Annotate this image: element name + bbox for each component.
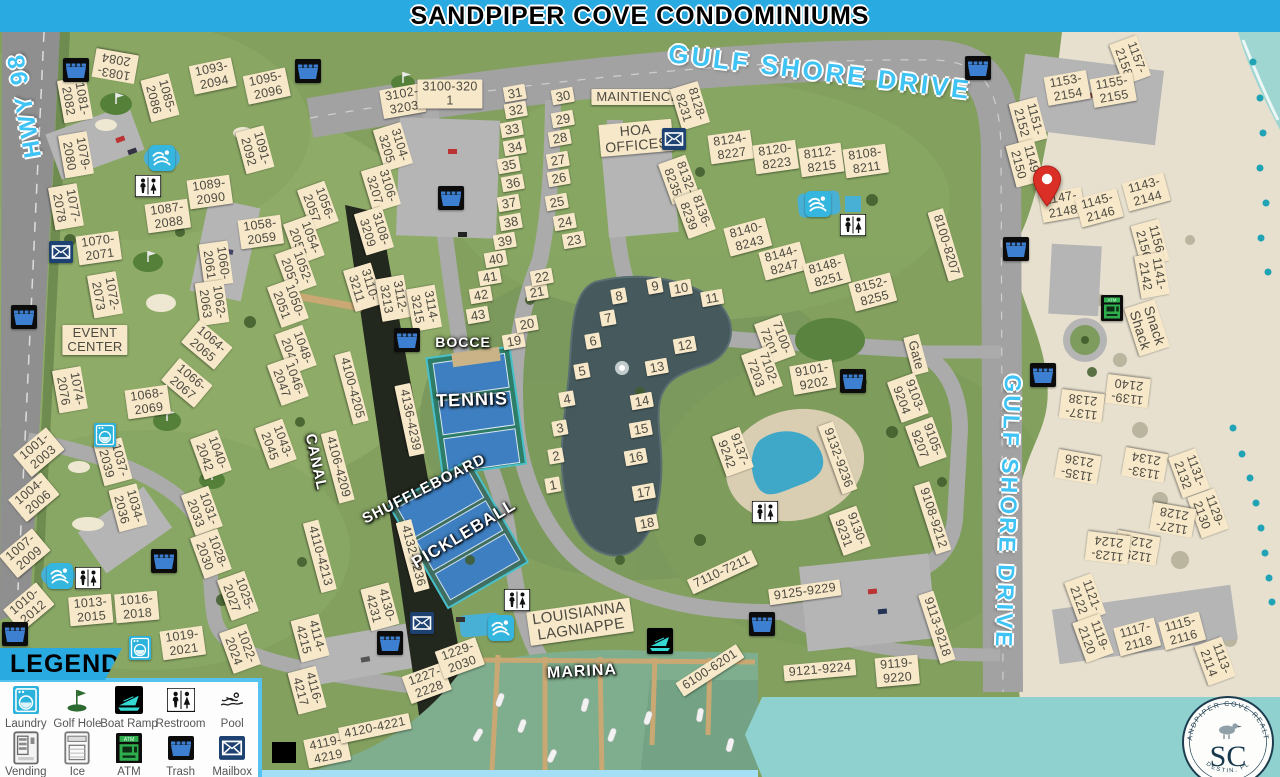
- building-label: 1007- 2009: [0, 528, 51, 578]
- legend-item-label: Ice: [70, 766, 85, 777]
- road-label: GULF SHORE DRIVE: [990, 374, 1027, 650]
- trash-icon: [295, 59, 321, 83]
- building-label: 1131- 2132: [1168, 448, 1210, 498]
- restroom-icon: [135, 175, 161, 197]
- building-label: 1123- 2124: [1085, 531, 1131, 565]
- building-label: 1085- 2086: [140, 73, 179, 123]
- building-label: 1004- 2006: [8, 472, 60, 522]
- building-label: 1013- 2015: [68, 594, 114, 627]
- building-label: 1028- 2030: [190, 529, 232, 580]
- unit-number-label: 11: [700, 289, 724, 308]
- building-label: 1001- 2003: [13, 427, 65, 477]
- building-label: 1040- 2042: [190, 430, 232, 481]
- unit-number-label: 33: [500, 120, 525, 139]
- logo-initials: SC: [1210, 740, 1247, 773]
- legend-item-label: ATM: [117, 766, 140, 777]
- building-label: 1058- 2059: [237, 215, 284, 250]
- legend-item-vending: Vending: [1, 733, 51, 777]
- ice-icon: [64, 733, 90, 763]
- legend-item-label: Trash: [166, 766, 195, 777]
- building-label: LOUISIANNA LAGNIAPPE: [526, 598, 634, 646]
- unit-number-label: 22: [530, 268, 555, 287]
- blacked-out-square: [272, 742, 296, 763]
- unit-number-label: 35: [497, 156, 522, 175]
- legend-item-label: Restroom: [156, 718, 206, 730]
- building-label: 1133- 2134: [1122, 447, 1169, 483]
- building-label: EVENT CENTER: [62, 325, 127, 355]
- building-label: 1081- 2082: [57, 76, 93, 124]
- trash-icon: [168, 733, 194, 763]
- legend-item-pool: Pool: [207, 685, 257, 730]
- building-label: 3104- 3205: [373, 122, 413, 172]
- building-label: 1135- 2136: [1055, 449, 1102, 485]
- restroom-icon: [504, 589, 530, 611]
- mailbox-icon: [219, 733, 245, 763]
- building-label: 1153- 2154: [1044, 70, 1091, 106]
- building-label: 1077- 2078: [48, 183, 84, 231]
- unit-number-label: 32: [504, 101, 529, 120]
- legend-item-atm: ATMATM: [104, 733, 154, 777]
- building-label: 4106-4209: [321, 430, 355, 504]
- building-label: 1127- 2128: [1150, 502, 1197, 538]
- area-label: SHUFFLEBOARD: [359, 451, 488, 528]
- unit-number-label: 34: [503, 138, 528, 157]
- building-label: 8152- 8255: [848, 272, 898, 311]
- building-label: 8124- 8227: [707, 130, 754, 165]
- building-label: 3108- 3209: [354, 206, 394, 256]
- trash-icon: [377, 631, 403, 655]
- building-label: 1145- 2146: [1075, 188, 1124, 227]
- unit-number-label: 3: [551, 419, 569, 436]
- laundry-icon: [129, 636, 151, 660]
- building-label: 1113- 2114: [1194, 636, 1235, 685]
- building-label: 3112- 3213: [375, 275, 411, 322]
- unit-number-label: 37: [497, 194, 522, 213]
- legend-item-laundry: Laundry: [1, 685, 51, 730]
- trash-icon: [63, 58, 89, 82]
- building-label: 9101- 9202: [789, 359, 837, 395]
- map-label-layer: 1083- 20841085- 20861081- 20821079- 2080…: [0, 0, 1280, 777]
- building-label: 1095- 2096: [243, 67, 292, 104]
- location-pin-icon: [1032, 165, 1062, 207]
- trash-icon: [965, 56, 991, 80]
- unit-number-label: 20: [515, 315, 540, 334]
- title-banner: SANDPIPER COVE CONDOMINIUMS: [0, 0, 1280, 32]
- building-label: 1091- 2092: [235, 125, 274, 175]
- unit-number-label: 25: [545, 193, 570, 212]
- legend-row: LaundryGolf HoleBoat RampRestroomPool: [0, 685, 258, 730]
- building-label: 4110-4213: [303, 519, 336, 592]
- pool-icon: [47, 563, 73, 589]
- trash-icon: [1030, 363, 1056, 387]
- building-label: 1068- 2069: [124, 385, 171, 420]
- unit-number-label: 16: [624, 448, 649, 467]
- road-label: HWY 98: [2, 50, 48, 160]
- area-label: BOCCE: [435, 334, 491, 350]
- building-label: 9105- 9207: [905, 417, 947, 468]
- building-label: 1064- 2065: [181, 320, 233, 370]
- trash-icon: [840, 369, 866, 393]
- building-label: 9119- 9220: [875, 655, 920, 688]
- unit-number-label: 41: [478, 268, 503, 287]
- unit-number-label: 10: [669, 279, 694, 298]
- legend-item-label: Boat Ramp: [100, 718, 158, 730]
- unit-number-label: 38: [499, 213, 524, 232]
- building-label: 1155- 2155: [1090, 72, 1137, 108]
- building-label: 1074- 2076: [52, 366, 88, 414]
- area-label: TENNIS: [436, 388, 509, 412]
- building-label: 9113-9218: [919, 591, 956, 664]
- building-label: 4100-4205: [335, 351, 369, 425]
- building-label: 9132-9236: [818, 421, 857, 494]
- unit-number-label: 31: [503, 84, 528, 103]
- building-label: 1087- 2088: [144, 199, 191, 234]
- mailbox-icon: [49, 241, 73, 263]
- trash-icon: [2, 622, 28, 646]
- restroom-icon: [752, 501, 778, 523]
- building-label: 1229- 2030: [435, 637, 486, 679]
- building-label: 1034- 2036: [108, 483, 147, 533]
- building-label: 4116- 4217: [287, 666, 326, 715]
- building-label: 1089- 2090: [186, 175, 233, 210]
- restroom-icon: [75, 567, 101, 589]
- building-label: 8136- 8239: [674, 189, 716, 240]
- trash-icon: [1003, 237, 1029, 261]
- unit-number-label: 13: [645, 358, 670, 377]
- atm-icon: ATM: [1101, 295, 1123, 321]
- trash-icon: [11, 305, 37, 329]
- building-label: 1137- 2138: [1059, 389, 1105, 423]
- building-label: 9130- 9231: [829, 506, 871, 557]
- atm-icon: ATM: [116, 733, 142, 763]
- legend-item-trash: Trash: [156, 733, 206, 777]
- area-label: PICKLEBALL: [408, 495, 519, 573]
- legend-item-label: Pool: [221, 718, 244, 730]
- building-label: 9121-9224: [783, 659, 857, 681]
- building-label: 8120- 8223: [752, 140, 799, 175]
- unit-number-label: 17: [632, 483, 657, 502]
- laundry-icon: [13, 685, 39, 715]
- legend-banner: LEGEND: [0, 648, 122, 680]
- road-label: GULF SHORE DRIVE: [667, 38, 974, 106]
- building-label: Snack Shack: [1124, 299, 1170, 357]
- svg-text:ATM: ATM: [1108, 298, 1117, 303]
- building-label: Gate: [903, 334, 929, 376]
- building-label: 9108-9212: [914, 481, 951, 555]
- unit-number-label: 12: [673, 336, 698, 355]
- mailbox-icon: [410, 612, 434, 634]
- trash-icon: [394, 328, 420, 352]
- building-label: 1093- 2094: [189, 57, 238, 94]
- unit-number-label: 6: [584, 332, 602, 349]
- unit-number-label: 4: [558, 390, 576, 407]
- pool-icon: [488, 615, 514, 641]
- legend-row: VendingIceATMATMTrashMailbox: [0, 733, 258, 777]
- unit-number-label: 5: [573, 362, 591, 379]
- area-label: MARINA: [547, 661, 618, 683]
- bottom-border-strip: [258, 770, 758, 777]
- building-label: 4130- 4231: [360, 582, 399, 632]
- building-label: 4114- 4215: [290, 614, 329, 663]
- building-label: 3114- 3215: [406, 285, 442, 332]
- unit-number-label: 43: [466, 306, 491, 325]
- legend-item-boat-ramp: Boat Ramp: [104, 685, 154, 730]
- unit-number-label: 24: [553, 213, 578, 232]
- restroom-icon: [840, 214, 866, 236]
- trash-icon: [151, 549, 177, 573]
- building-label: 1072- 2073: [87, 271, 123, 319]
- unit-number-label: 28: [548, 129, 573, 148]
- building-label: 4120-4221: [338, 713, 412, 743]
- unit-number-label: 15: [629, 420, 654, 439]
- unit-number-label: 2: [547, 447, 565, 464]
- page-title: SANDPIPER COVE CONDOMINIUMS: [411, 2, 870, 31]
- building-label: 9125-9229: [768, 579, 842, 604]
- legend-panel: LaundryGolf HoleBoat RampRestroomPoolVen…: [0, 678, 262, 777]
- svg-text:ATM: ATM: [124, 736, 135, 742]
- building-label: 6100-6201: [675, 644, 744, 696]
- legend-item-label: Laundry: [5, 718, 47, 730]
- building-label: 1143- 2144: [1122, 172, 1171, 211]
- building-label: 1117- 2118: [1113, 618, 1161, 657]
- building-label: 1016- 2018: [114, 591, 160, 624]
- realty-logo: SANDPIPER COVE REALTY DESTIN, FL SC: [1180, 694, 1276, 777]
- building-label: 7110-7211: [687, 550, 758, 594]
- unit-number-label: 40: [484, 250, 509, 269]
- unit-number-label: 29: [551, 110, 576, 129]
- boatramp-icon: [115, 685, 143, 715]
- unit-number-label: 9: [646, 277, 664, 294]
- unit-number-label: 23: [562, 231, 587, 250]
- legend-title: LEGEND: [0, 650, 120, 679]
- building-label: 9137- 9242: [712, 427, 754, 478]
- building-label: 9103- 9204: [887, 373, 929, 424]
- building-label: 8148- 8251: [802, 253, 852, 292]
- building-label: 8100-8207: [928, 208, 964, 282]
- building-label: 1119- 2120: [1072, 613, 1113, 662]
- unit-number-label: 42: [469, 286, 494, 305]
- unit-number-label: 8: [610, 287, 628, 304]
- map-stage: SANDPIPER COVE CONDOMINIUMS 1083- 208410…: [0, 0, 1280, 777]
- pool-icon: [149, 145, 175, 171]
- poolswim-icon: [219, 685, 245, 715]
- building-label: 1043- 2045: [255, 419, 297, 470]
- building-label: 1019- 2021: [159, 626, 206, 661]
- building-label: 8128- 8231: [670, 81, 710, 131]
- unit-number-label: 1: [544, 476, 562, 493]
- boatramp-icon: [647, 628, 673, 654]
- building-label: 1151- 2152: [1008, 97, 1047, 146]
- unit-number-label: 26: [547, 169, 572, 188]
- legend-item-label: Mailbox: [212, 766, 252, 777]
- legend-item-label: Golf Hole: [53, 718, 101, 730]
- unit-number-label: 30: [551, 87, 576, 106]
- unit-number-label: 27: [546, 151, 571, 170]
- building-label: 8108- 8211: [842, 144, 889, 179]
- building-label: 1139- 2140: [1105, 374, 1151, 408]
- trash-icon: [749, 612, 775, 636]
- building-label: 3100-320 1: [417, 80, 482, 109]
- legend-item-ice: Ice: [52, 733, 102, 777]
- building-label: 4136-4239: [395, 383, 425, 457]
- legend-item-golf-hole: Golf Hole: [52, 685, 102, 730]
- pool-icon: [805, 191, 831, 217]
- building-label: 1079- 2080: [58, 131, 94, 179]
- restroom-icon: [167, 685, 195, 715]
- unit-number-label: 18: [635, 514, 660, 533]
- unit-number-label: 39: [493, 232, 518, 251]
- unit-number-label: 36: [501, 174, 526, 193]
- building-label: 1022- 2024: [219, 624, 261, 675]
- building-label: 8112- 8215: [798, 143, 844, 178]
- unit-number-label: 19: [502, 332, 527, 351]
- unit-number-label: 7: [599, 309, 617, 326]
- vending-icon: [13, 733, 39, 763]
- legend-item-restroom: Restroom: [156, 685, 206, 730]
- legend-item-label: Vending: [5, 766, 47, 777]
- unit-number-label: 14: [630, 392, 655, 411]
- building-label: 1070- 2071: [75, 231, 122, 266]
- trash-icon: [438, 186, 464, 210]
- building-label: 1025- 2027: [217, 571, 259, 622]
- laundry-icon: [94, 423, 116, 447]
- mailbox-icon: [662, 128, 686, 150]
- golf-icon: [64, 685, 90, 715]
- legend-item-mailbox: Mailbox: [207, 733, 257, 777]
- building-label: 1083- 2084: [91, 48, 139, 84]
